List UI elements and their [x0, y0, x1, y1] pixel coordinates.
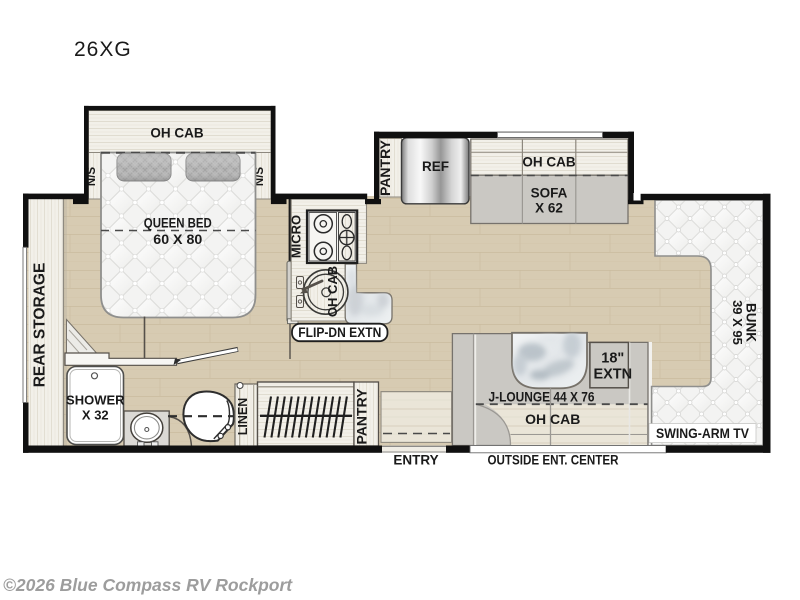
svg-text:MICRO: MICRO [289, 215, 304, 258]
svg-text:26XG: 26XG [74, 38, 132, 61]
svg-text:OH CAB: OH CAB [150, 126, 203, 141]
svg-text:QUEEN BED: QUEEN BED [144, 215, 212, 231]
svg-text:LINEN: LINEN [236, 398, 250, 436]
svg-text:OH CAB: OH CAB [325, 266, 340, 317]
svg-text:©2026 Blue Compass RV Rockport: ©2026 Blue Compass RV Rockport [3, 575, 293, 595]
svg-text:X 62: X 62 [535, 201, 563, 216]
svg-text:39 X 95: 39 X 95 [730, 300, 745, 345]
svg-text:60 X 80: 60 X 80 [153, 231, 202, 247]
svg-text:REAR STORAGE: REAR STORAGE [32, 263, 49, 388]
svg-text:EXTN: EXTN [593, 367, 632, 383]
svg-text:SWING-ARM TV: SWING-ARM TV [656, 425, 750, 441]
svg-text:SOFA: SOFA [531, 186, 568, 201]
svg-text:18": 18" [601, 351, 624, 367]
svg-text:X 32: X 32 [82, 408, 109, 423]
svg-text:OH CAB: OH CAB [522, 155, 575, 170]
svg-text:REF: REF [422, 159, 449, 174]
svg-text:OUTSIDE ENT. CENTER: OUTSIDE ENT. CENTER [488, 453, 619, 468]
svg-text:SHOWER: SHOWER [66, 393, 125, 408]
svg-text:J-LOUNGE 44 X 76: J-LOUNGE 44 X 76 [489, 390, 595, 405]
svg-text:FLIP-DN EXTN: FLIP-DN EXTN [298, 325, 381, 340]
svg-text:ENTRY: ENTRY [393, 453, 438, 468]
svg-text:OH CAB: OH CAB [525, 411, 580, 427]
svg-text:PANTRY: PANTRY [377, 139, 393, 196]
svg-text:PANTRY: PANTRY [353, 388, 369, 445]
